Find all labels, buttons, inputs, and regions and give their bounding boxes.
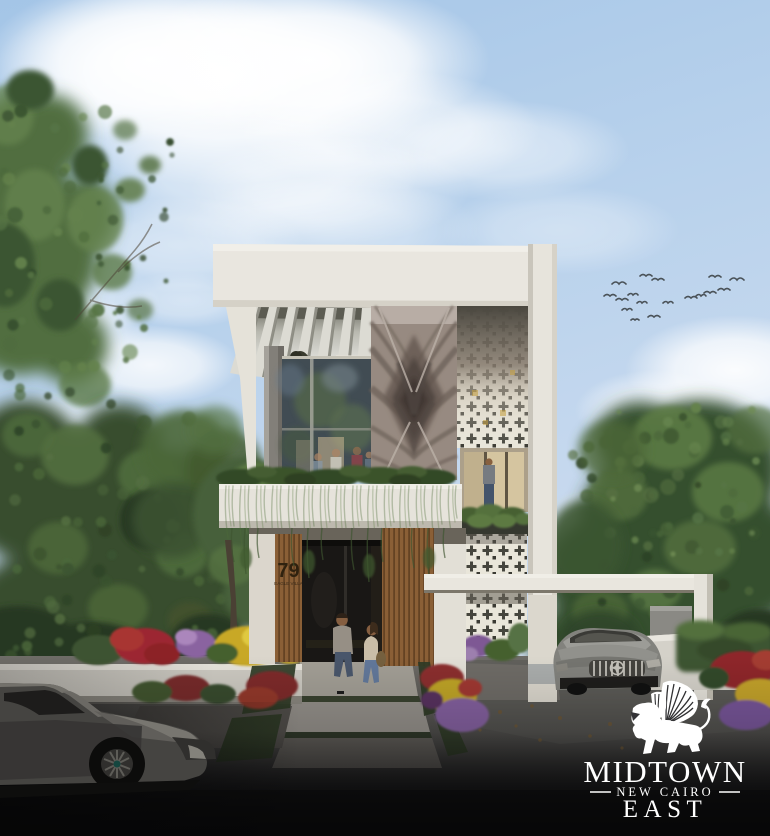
svg-text:EAST: EAST (623, 796, 708, 823)
svg-text:MIDTOWN: MIDTOWN (583, 754, 746, 789)
svg-text:EAGLE VILLA: EAGLE VILLA (274, 581, 303, 586)
svg-text:79: 79 (277, 560, 299, 582)
